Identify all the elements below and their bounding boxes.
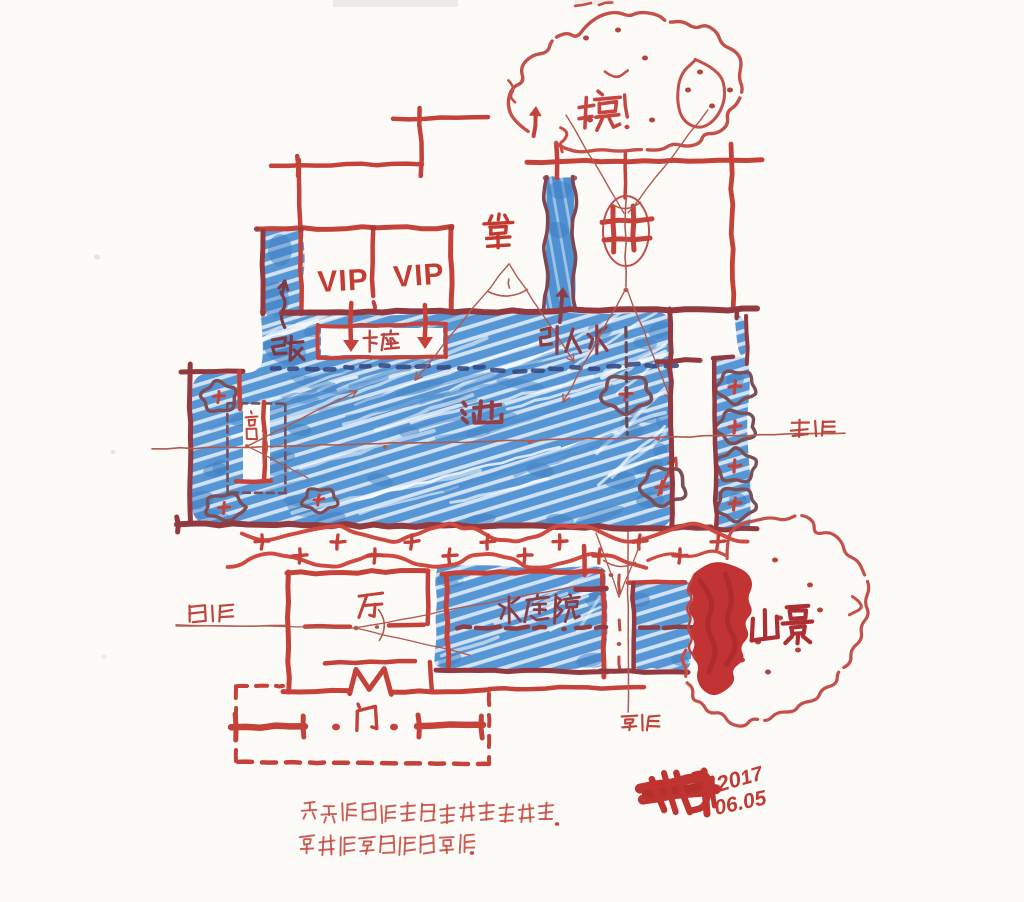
svg-text:VIP: VIP (392, 257, 446, 294)
svg-text:VIP: VIP (317, 263, 370, 299)
